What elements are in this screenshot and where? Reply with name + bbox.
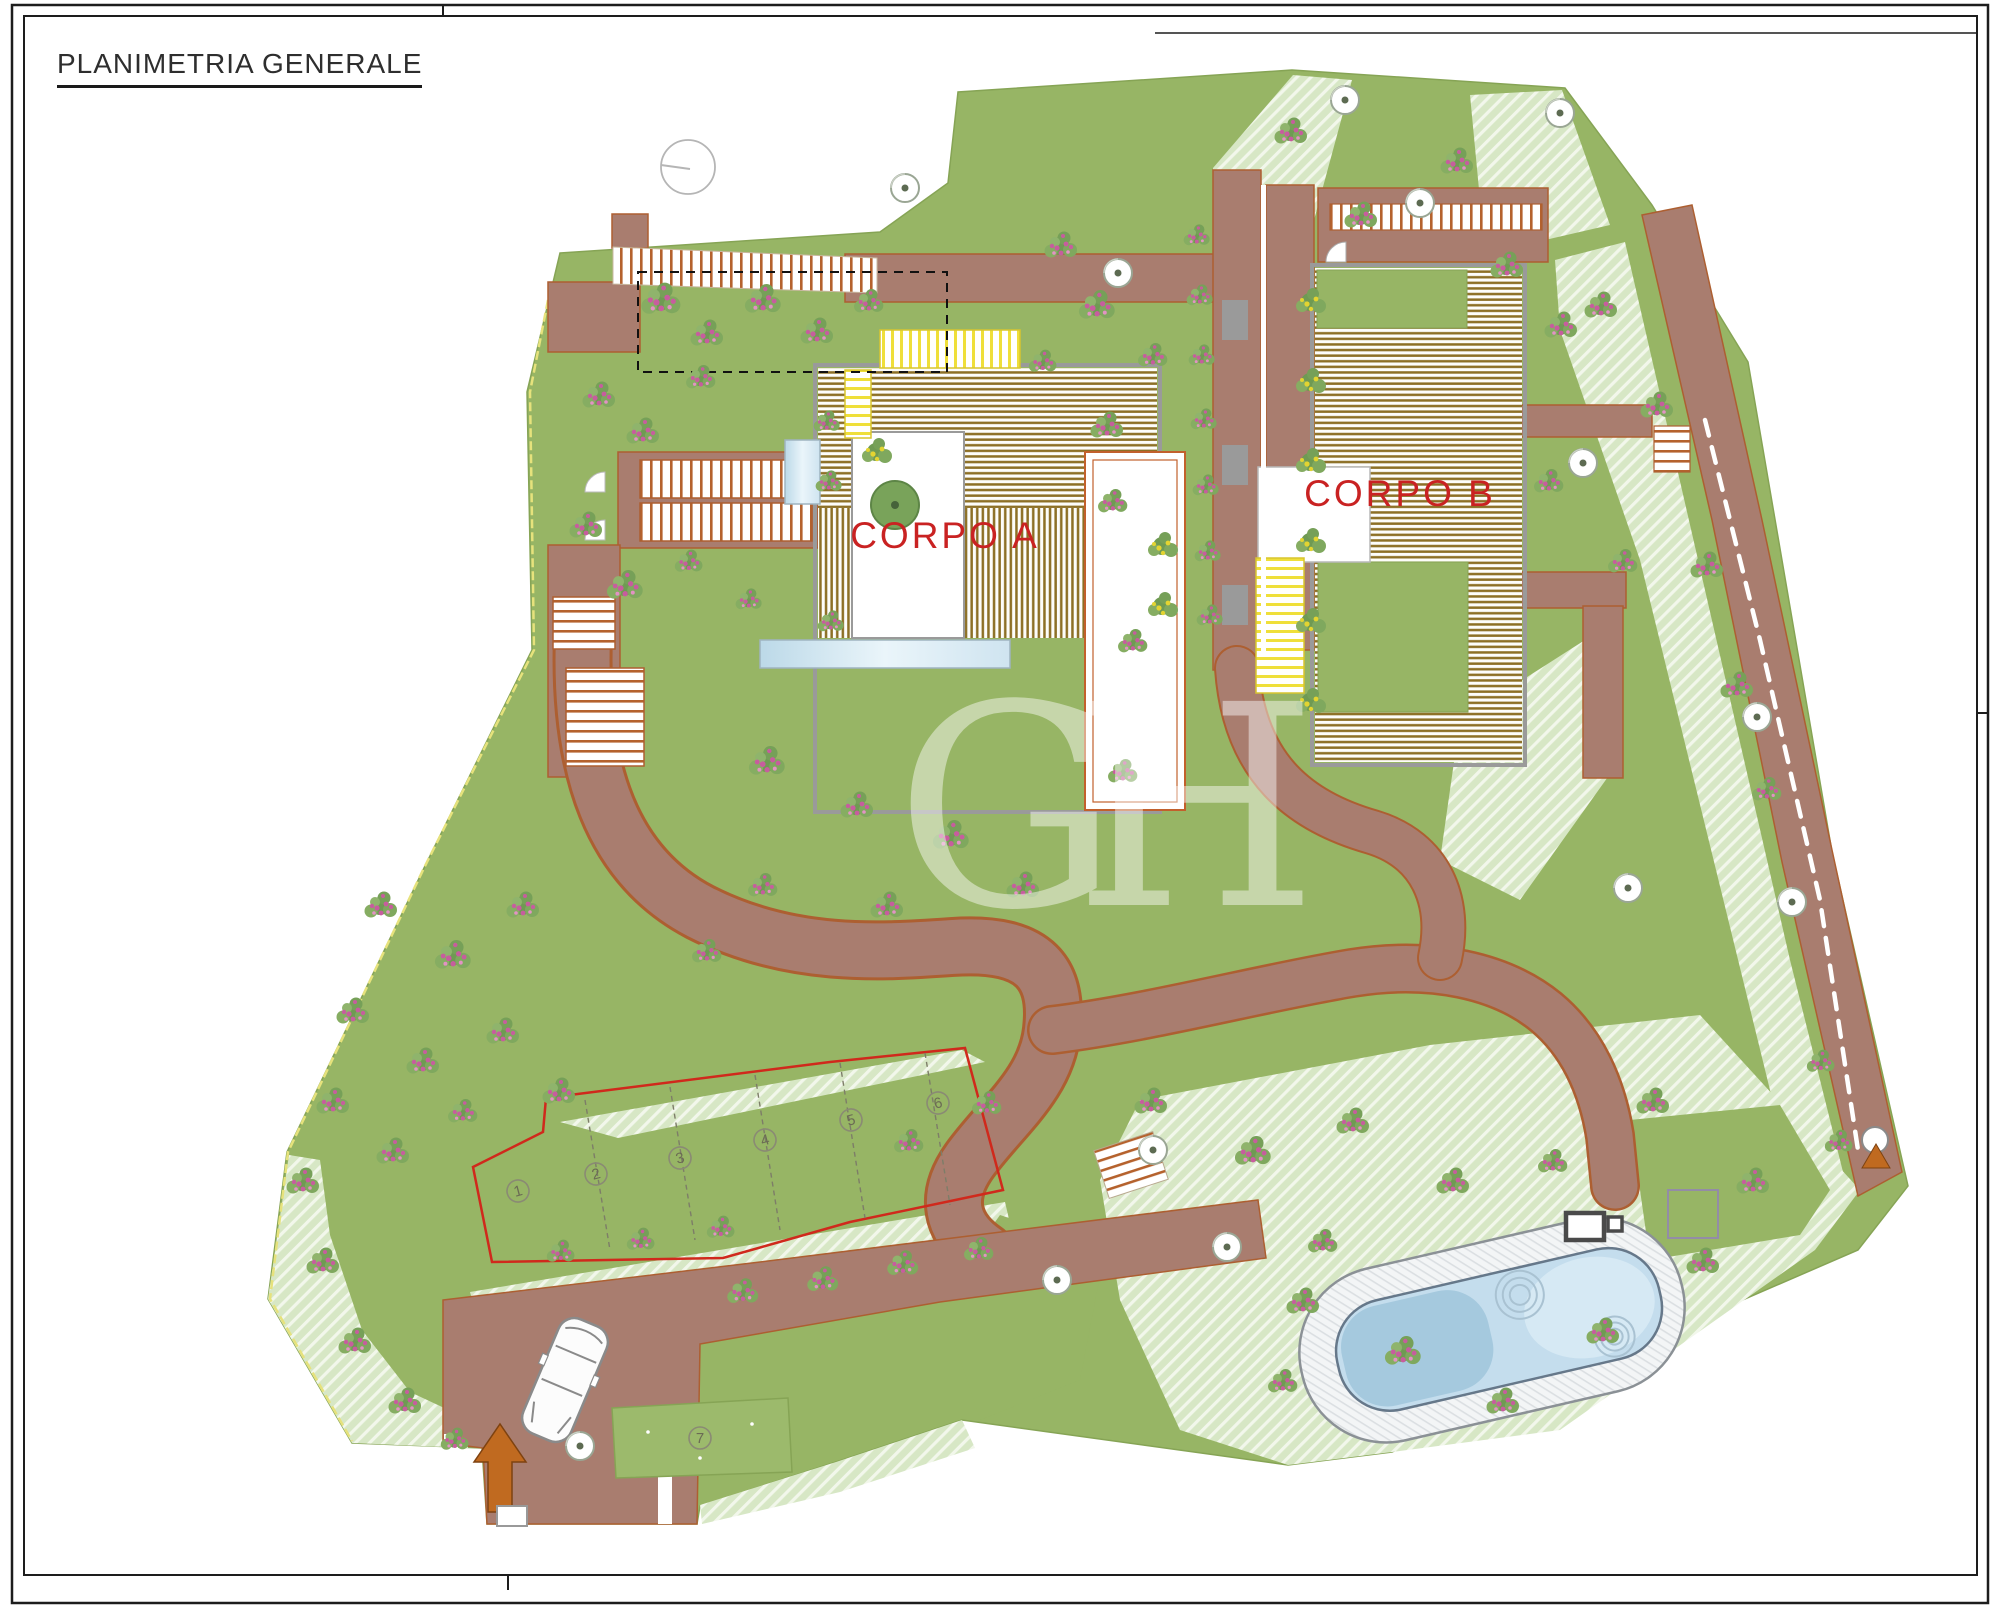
page-title: PLANIMETRIA GENERALE xyxy=(57,48,422,88)
rear-gate xyxy=(1862,1127,1890,1168)
tree-icon xyxy=(1043,1266,1071,1294)
gate-intercom xyxy=(497,1506,527,1526)
site-plan-svg: GH CORPO A CORPO B 1234567 xyxy=(0,0,2000,1609)
tree-icon xyxy=(1406,189,1434,217)
pool-house xyxy=(1566,1213,1604,1240)
tree-icon xyxy=(1569,449,1597,477)
tree-icon xyxy=(1778,888,1806,916)
tree-icon xyxy=(1331,86,1359,114)
tree-icon xyxy=(1743,703,1771,731)
tree-icon xyxy=(1546,99,1574,127)
parking-number-label: 7 xyxy=(696,1430,704,1447)
tree-icon xyxy=(891,174,919,202)
shrub-icon xyxy=(365,892,398,918)
watermark: GH xyxy=(895,646,1306,972)
tree-icon xyxy=(566,1432,594,1460)
compass-icon xyxy=(661,140,715,194)
tree-icon xyxy=(1104,259,1132,287)
tree-icon xyxy=(1614,874,1642,902)
label-corpo-b: CORPO B xyxy=(1304,473,1496,514)
label-corpo-a: CORPO A xyxy=(850,515,1040,556)
tree-icon xyxy=(1139,1136,1167,1164)
tree-icon xyxy=(1213,1233,1241,1261)
drawing-sheet: PLANIMETRIA GENERALE xyxy=(0,0,2000,1609)
